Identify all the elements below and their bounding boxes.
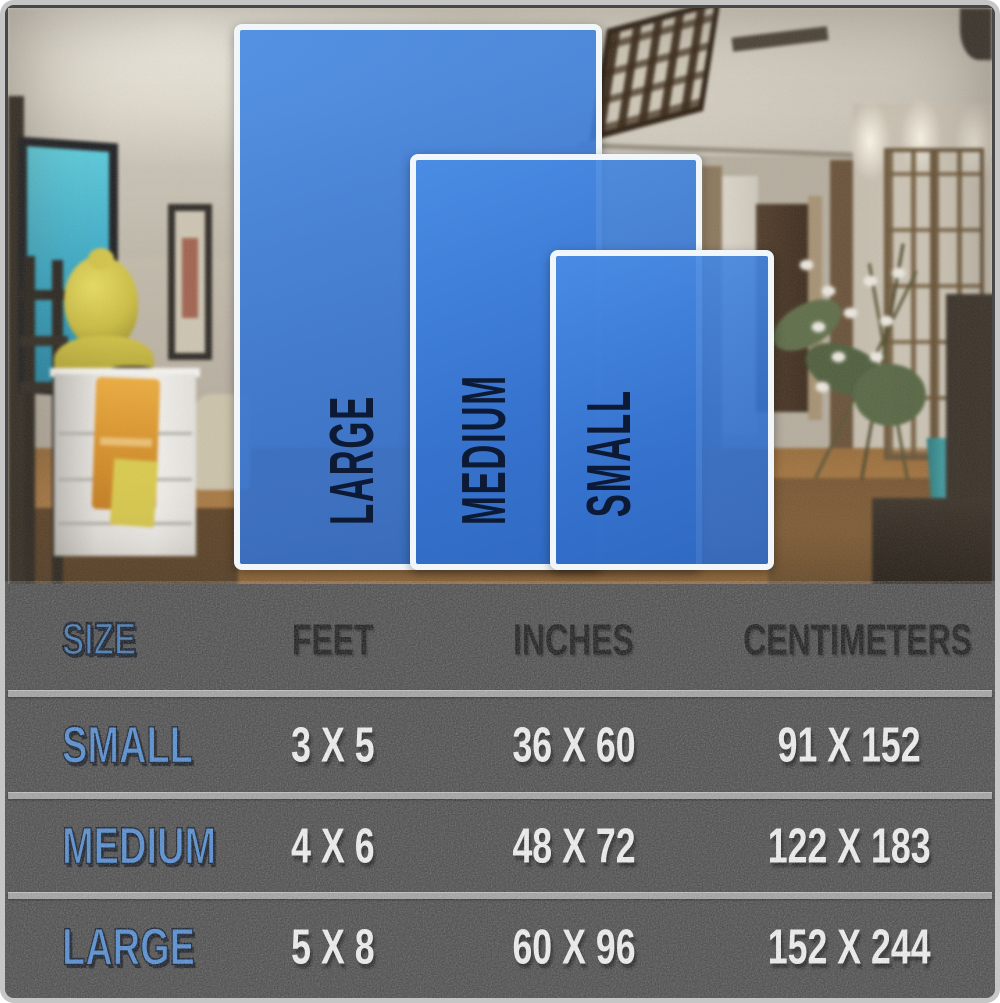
row-label-medium: MEDIUM bbox=[8, 817, 224, 875]
small-inches-value: 36 X 60 bbox=[441, 717, 707, 772]
table-row-small: SMALL 3 X 5 36 X 60 91 X 152 bbox=[8, 697, 992, 792]
row-label-small: SMALL bbox=[8, 716, 224, 774]
small-centimeters-value: 91 X 152 bbox=[707, 717, 992, 772]
header-inches: INCHES bbox=[441, 616, 707, 664]
table-row-large: LARGE 5 X 8 60 X 96 152 X 244 bbox=[8, 899, 992, 994]
row-divider bbox=[8, 792, 992, 799]
medium-feet-value: 4 X 6 bbox=[224, 818, 440, 873]
rug-label-medium: MEDIUM bbox=[457, 374, 513, 525]
table-header-row: SIZE FEET INCHES CENTIMETERS bbox=[8, 590, 992, 690]
medium-inches-value: 48 X 72 bbox=[441, 818, 707, 873]
room-photo: LARGE MEDIUM SMALL bbox=[8, 8, 992, 584]
header-size: SIZE bbox=[8, 615, 224, 665]
rug-overlay-small: SMALL bbox=[550, 250, 774, 570]
row-label-large: LARGE bbox=[8, 918, 224, 976]
header-feet: FEET bbox=[224, 616, 440, 664]
header-centimeters: CENTIMETERS bbox=[707, 616, 992, 664]
rug-label-large: LARGE bbox=[325, 395, 381, 525]
large-feet-value: 5 X 8 bbox=[224, 919, 440, 974]
large-inches-value: 60 X 96 bbox=[441, 919, 707, 974]
small-feet-value: 3 X 5 bbox=[224, 717, 440, 772]
size-chart-table: SIZE FEET INCHES CENTIMETERS SMALL 3 X 5… bbox=[8, 584, 992, 998]
rug-label-small: SMALL bbox=[582, 389, 638, 517]
row-divider bbox=[8, 690, 992, 697]
row-divider bbox=[8, 892, 992, 899]
table-row-medium: MEDIUM 4 X 6 48 X 72 122 X 183 bbox=[8, 799, 992, 892]
rug-size-chart-image: LARGE MEDIUM SMALL SIZE FEET INCHES CENT… bbox=[0, 0, 1000, 1003]
large-centimeters-value: 152 X 244 bbox=[707, 919, 992, 974]
medium-centimeters-value: 122 X 183 bbox=[707, 818, 992, 873]
